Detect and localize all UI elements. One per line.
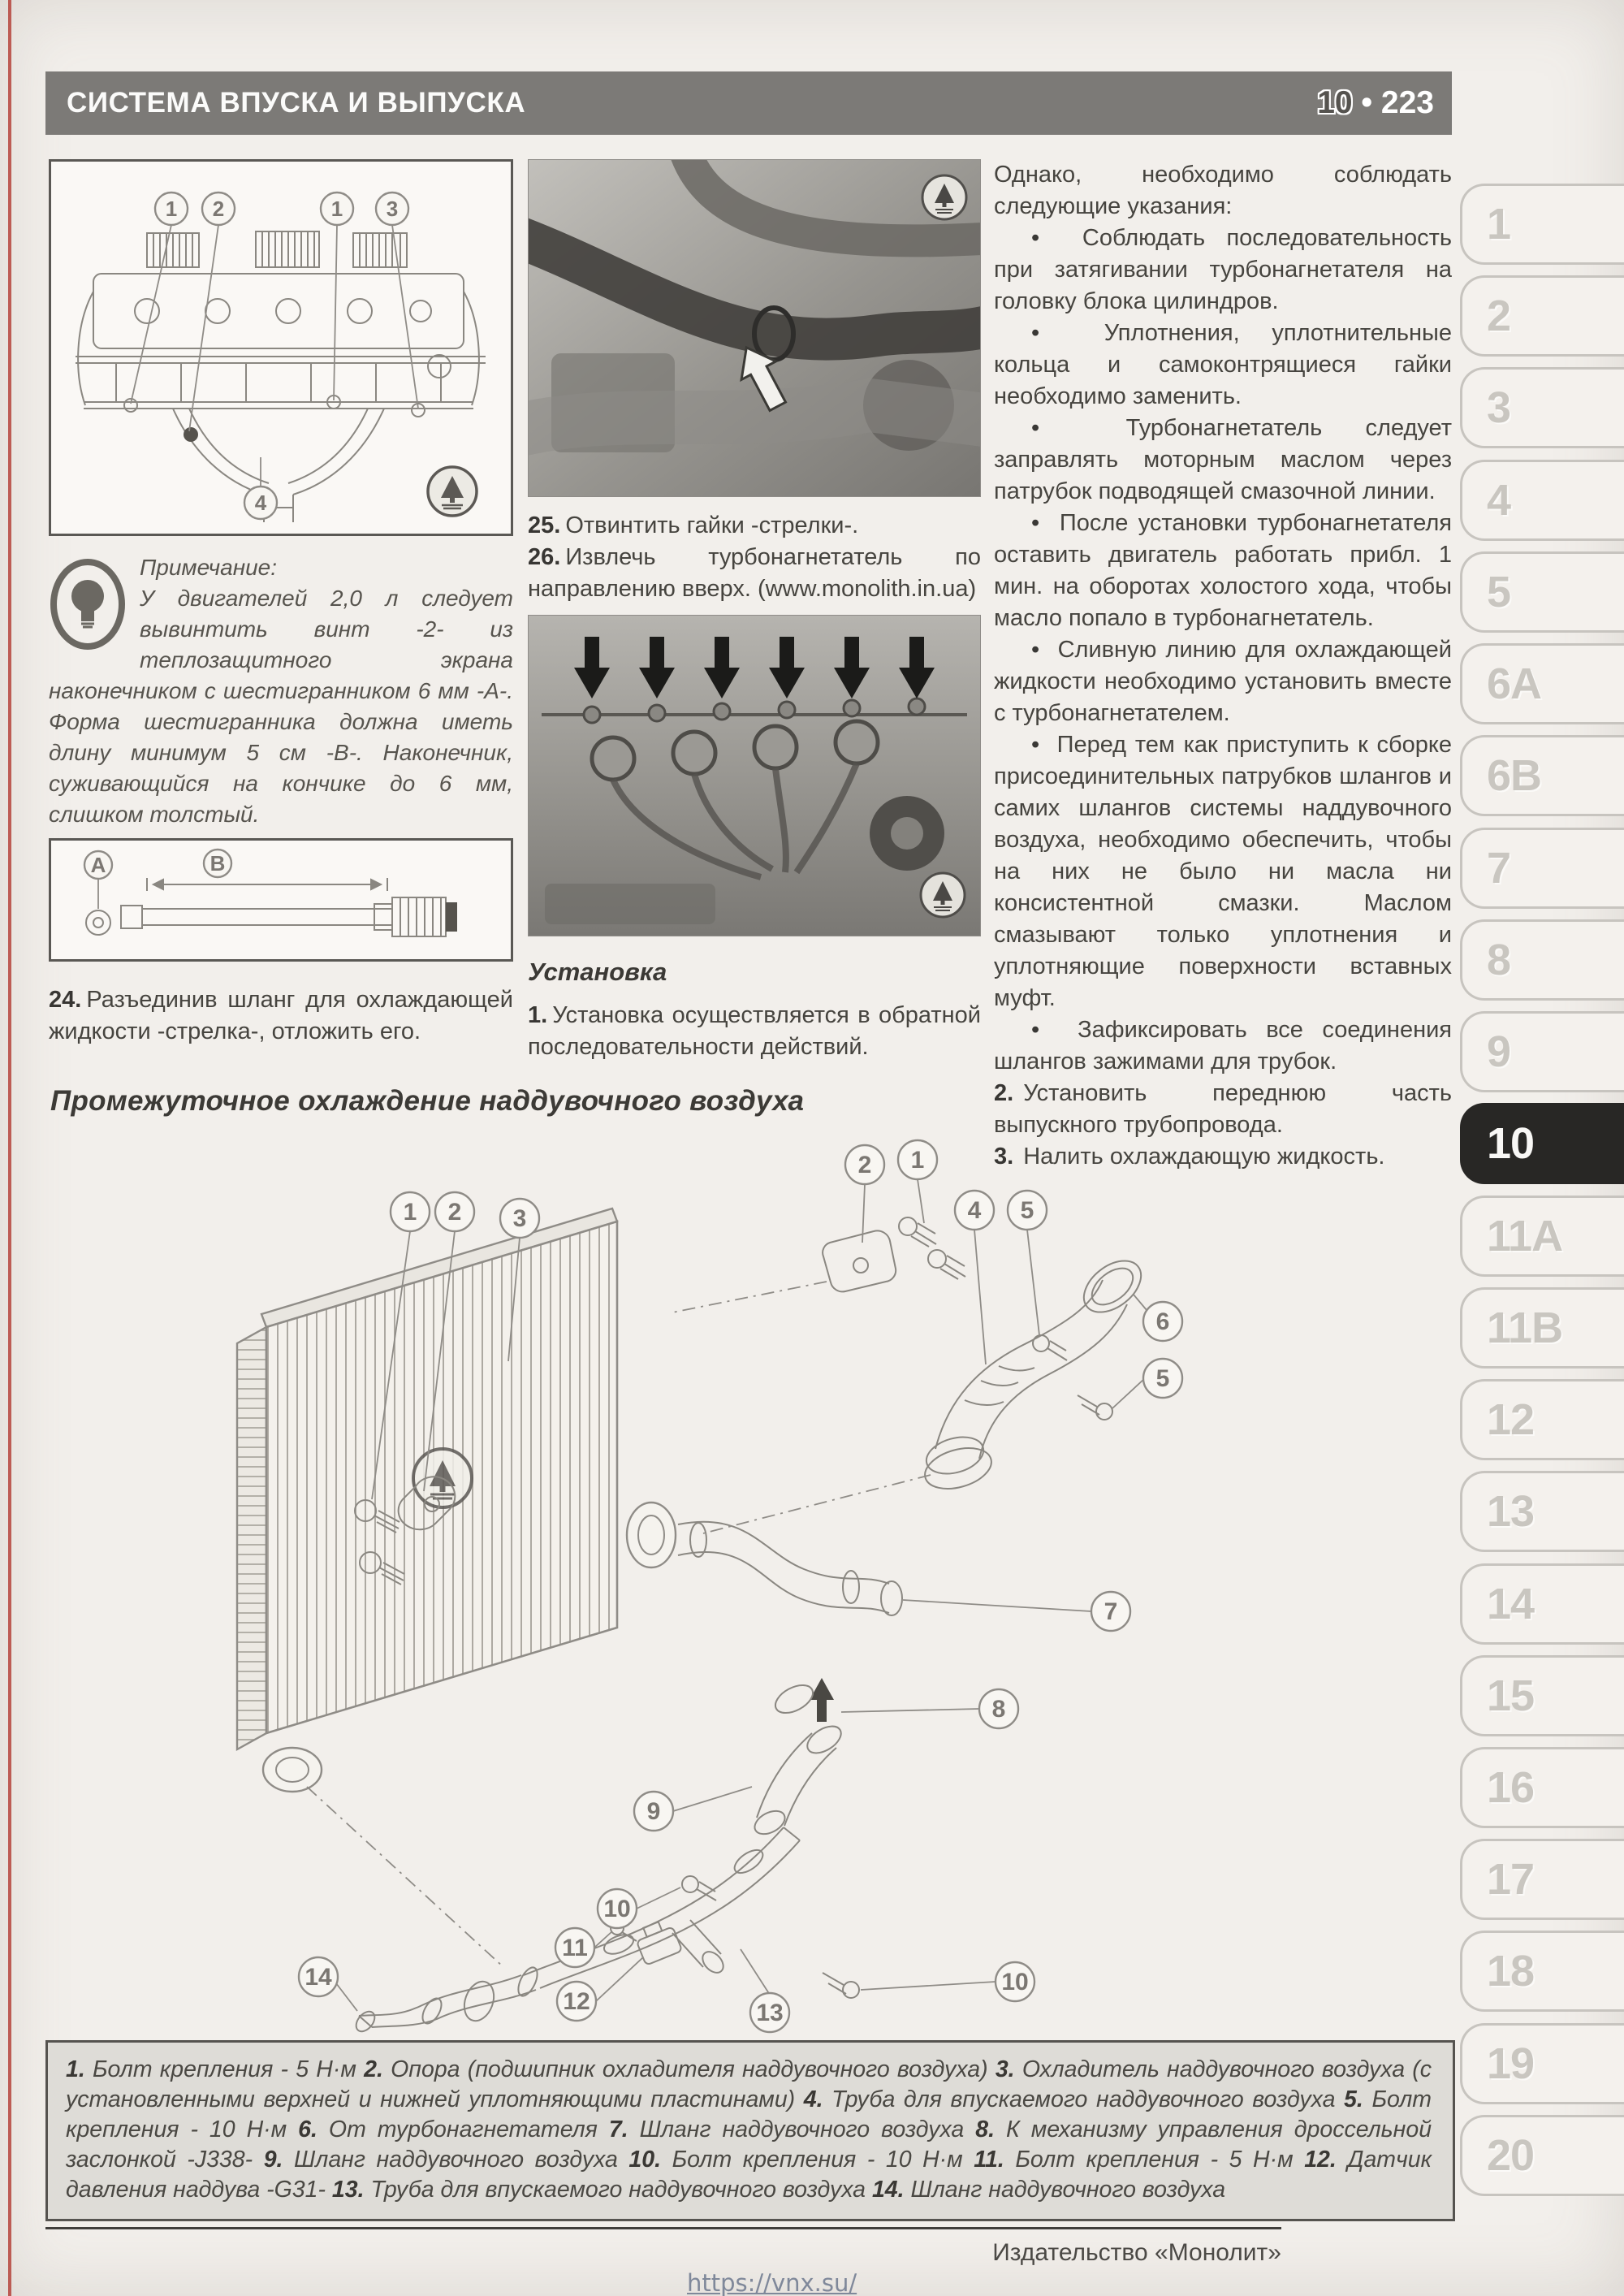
callout-2: 2 xyxy=(435,1192,474,1231)
photo1-svg xyxy=(529,160,980,496)
screw-2-mark xyxy=(184,427,198,442)
guideline-item: Сливную линию для охлаждающей жидкости н… xyxy=(994,634,1452,729)
callout-10b: 10 xyxy=(996,1962,1034,2001)
callout-6: 6 xyxy=(1143,1302,1182,1341)
chapter-tab-15: 15 xyxy=(1460,1655,1624,1736)
svg-text:4: 4 xyxy=(255,491,267,515)
air-hose-7 xyxy=(678,1522,902,1615)
chapter-tab-1: 1 xyxy=(1460,184,1624,265)
callout-13: 13 xyxy=(750,1993,789,2032)
page-header: СИСТЕМА ВПУСКА И ВЫПУСКА 10 • 223 xyxy=(45,71,1452,135)
step-24-text: Разъединив шланг для охлаждающей жидкост… xyxy=(49,987,513,1044)
chapter-tab-2: 2 xyxy=(1460,275,1624,357)
legend-text: 1. Болт крепления - 5 Н·м 2. Опора (подш… xyxy=(66,2055,1432,2205)
charge-air-pipe-13 xyxy=(524,1827,859,1998)
chapter-tab-14: 14 xyxy=(1460,1563,1624,1645)
footer-divider xyxy=(45,2227,1281,2229)
callout-1-left: 1 xyxy=(155,192,188,225)
callout-1: 1 xyxy=(391,1192,430,1231)
chapter-tab-16: 16 xyxy=(1460,1747,1624,1828)
section-heading: Промежуточное охлаждение наддувочного во… xyxy=(50,1085,804,1118)
middle-column: 25.Отвинтить гайки -стрелки-. 26.Извлечь… xyxy=(528,159,981,1063)
chapter-number: 10 xyxy=(1317,85,1352,120)
chapter-tab-sidebar: 1 2 3 4 5 6A 6B 7 8 9 10 11A 11B 12 13 1… xyxy=(1460,184,1624,2196)
svg-text:B: B xyxy=(210,851,226,876)
callout-5b: 5 xyxy=(1143,1359,1182,1398)
turbo-outlet-pipe xyxy=(920,1251,1151,1496)
callout-7: 7 xyxy=(1091,1592,1130,1631)
svg-text:13: 13 xyxy=(756,2000,783,2026)
callout-3: 3 xyxy=(500,1199,539,1238)
svg-text:1: 1 xyxy=(404,1199,417,1226)
monolith-logo-icon xyxy=(921,873,965,917)
vnx-link[interactable]: https://vnx.su/ xyxy=(687,2269,857,2296)
guideline-item: Перед тем как приступить к сборке присое… xyxy=(994,729,1452,1014)
step-25: 25.Отвинтить гайки -стрелки-. xyxy=(528,510,981,542)
step-26-number: 26. xyxy=(528,544,560,570)
step-26-text: Извлечь турбонагнетатель по направлению … xyxy=(528,544,981,602)
chapter-tab-6B: 6B xyxy=(1460,735,1624,816)
svg-text:3: 3 xyxy=(513,1205,527,1232)
callout-A: A xyxy=(84,851,112,879)
chapter-tab-11B: 11B xyxy=(1460,1287,1624,1369)
svg-text:7: 7 xyxy=(1104,1598,1118,1625)
svg-text:3: 3 xyxy=(387,197,398,221)
callout-9: 9 xyxy=(634,1792,673,1831)
note-block: Примечание: У двигателей 2,0 л следует в… xyxy=(49,552,513,830)
svg-text:6: 6 xyxy=(1156,1308,1170,1335)
page-number-sep: • xyxy=(1361,85,1372,120)
svg-text:11: 11 xyxy=(562,1935,588,1961)
guidelines-intro: Однако, необходимо соблюдать следующие у… xyxy=(994,159,1452,223)
installation-heading: Установка xyxy=(528,958,981,987)
callout-B: B xyxy=(204,850,231,877)
svg-text:1: 1 xyxy=(911,1147,925,1174)
steps-25-26: 25.Отвинтить гайки -стрелки-. 26.Извлечь… xyxy=(528,510,981,605)
svg-text:8: 8 xyxy=(992,1696,1006,1723)
step-1-number: 1. xyxy=(528,1002,547,1028)
svg-text:10: 10 xyxy=(1001,1969,1028,1995)
lightbulb-icon xyxy=(49,557,127,651)
photo2-svg xyxy=(529,616,980,936)
svg-text:5: 5 xyxy=(1156,1365,1170,1392)
svg-text:2: 2 xyxy=(448,1199,462,1226)
callout-2b: 2 xyxy=(845,1145,884,1184)
chapter-tab-10-active: 10 xyxy=(1460,1103,1624,1184)
callout-4: 4 xyxy=(955,1191,994,1230)
step-26: 26.Извлечь турбонагнетатель по направлен… xyxy=(528,542,981,605)
air-hose-9 xyxy=(751,1680,846,1839)
tool-tip-cap xyxy=(446,902,457,932)
svg-text:1: 1 xyxy=(166,197,177,221)
svg-text:4: 4 xyxy=(968,1197,982,1224)
svg-text:9: 9 xyxy=(647,1798,661,1825)
guideline-item: Соблюдать последовательность при затягив… xyxy=(994,223,1452,318)
step-25-text: Отвинтить гайки -стрелки-. xyxy=(565,512,858,538)
svg-text:A: A xyxy=(91,853,106,877)
engine-top-view-diagram: 1 2 1 3 4 xyxy=(49,159,513,536)
photo-manifold-nuts xyxy=(528,615,981,936)
svg-text:1: 1 xyxy=(331,197,343,221)
step-2-text: Установить переднюю часть выпускного тру… xyxy=(994,1080,1452,1138)
chapter-tab-8: 8 xyxy=(1460,919,1624,1001)
right-column: Однако, необходимо соблюдать следующие у… xyxy=(994,159,1452,1173)
page-title: СИСТЕМА ВПУСКА И ВЫПУСКА xyxy=(67,71,525,135)
guidelines-list: Соблюдать последовательность при затягив… xyxy=(994,223,1452,1078)
guideline-item: Турбонагнетатель следует заправлять мото… xyxy=(994,413,1452,508)
step-24: 24.Разъединив шланг для охлаждающей жидк… xyxy=(49,984,513,1048)
svg-text:5: 5 xyxy=(1021,1197,1034,1224)
chapter-tab-17: 17 xyxy=(1460,1839,1624,1920)
guideline-item: После установки турбонагнетателя оставит… xyxy=(994,508,1452,634)
step-2-number: 2. xyxy=(994,1080,1013,1106)
intercooler-exploded-diagram: 1 2 3 2 1 4 5 6 5 7 8 9 10 11 12 10 13 1… xyxy=(49,1131,1453,2034)
chapter-tab-11A: 11A xyxy=(1460,1196,1624,1277)
guideline-item: Зафиксировать все соединения шлангов заж… xyxy=(994,1014,1452,1078)
guideline-item: Уплотнения, уплотнительные кольца и само… xyxy=(994,318,1452,413)
chapter-tab-19: 19 xyxy=(1460,2023,1624,2104)
photo-coolant-hose xyxy=(528,159,981,497)
callout-1-right: 1 xyxy=(321,192,353,225)
callout-5: 5 xyxy=(1008,1191,1047,1230)
chapter-tab-12: 12 xyxy=(1460,1379,1624,1460)
callout-12: 12 xyxy=(557,1982,596,2021)
monolith-logo-icon xyxy=(922,175,966,219)
step-1: 1.Установка осуществляется в обратной по… xyxy=(528,1000,981,1063)
svg-text:2: 2 xyxy=(858,1152,872,1178)
chapter-tab-9: 9 xyxy=(1460,1011,1624,1092)
svg-text:10: 10 xyxy=(603,1896,630,1922)
engine-diagram-svg: 1 2 1 3 4 xyxy=(51,162,511,534)
chapter-tab-18: 18 xyxy=(1460,1931,1624,2012)
svg-text:12: 12 xyxy=(563,1988,590,2015)
page-number: 10 • 223 xyxy=(1317,71,1434,135)
step-1-text: Установка осуществляется в обратной посл… xyxy=(528,1002,981,1060)
direction-arrow-8 xyxy=(810,1678,834,1722)
callout-2: 2 xyxy=(202,192,235,225)
chapter-tab-6A: 6A xyxy=(1460,643,1624,724)
chapter-tab-7: 7 xyxy=(1460,828,1624,909)
callout-1b: 1 xyxy=(898,1140,937,1179)
hex-tool-svg: A B xyxy=(51,841,511,959)
callout-10: 10 xyxy=(598,1889,637,1928)
callout-14: 14 xyxy=(299,1957,338,1996)
air-hose-14 xyxy=(352,1965,541,2034)
chapter-tab-20: 20 xyxy=(1460,2115,1624,2196)
chapter-tab-4: 4 xyxy=(1460,460,1624,541)
top-bracket-bolts xyxy=(823,1217,965,1291)
svg-text:14: 14 xyxy=(304,1964,332,1991)
scan-edge-line xyxy=(8,0,11,2296)
chapter-tab-3: 3 xyxy=(1460,367,1624,448)
manual-page: СИСТЕМА ВПУСКА И ВЫПУСКА 10 • 223 xyxy=(0,0,1624,2296)
monolith-logo-icon xyxy=(428,467,477,516)
callout-8: 8 xyxy=(979,1689,1018,1728)
publisher-credit: Издательство «Монолит» xyxy=(45,2239,1281,2267)
diagram-legend: 1. Болт крепления - 5 Н·м 2. Опора (подш… xyxy=(45,2040,1455,2221)
chapter-tab-5: 5 xyxy=(1460,551,1624,633)
page-number-value: 223 xyxy=(1381,85,1434,120)
callout-11: 11 xyxy=(555,1928,594,1967)
hex-tool-diagram: A B xyxy=(49,838,513,962)
callout-3: 3 xyxy=(376,192,408,225)
chapter-tab-13: 13 xyxy=(1460,1471,1624,1552)
svg-text:2: 2 xyxy=(213,197,224,221)
step-25-number: 25. xyxy=(528,512,560,538)
left-column: 1 2 1 3 4 Примечание: У дв xyxy=(49,159,513,1048)
step-24-number: 24. xyxy=(49,987,81,1013)
intercooler-diagram-svg: 1 2 3 2 1 4 5 6 5 7 8 9 10 11 12 10 13 1… xyxy=(49,1131,1453,2034)
callout-4: 4 xyxy=(244,486,277,519)
